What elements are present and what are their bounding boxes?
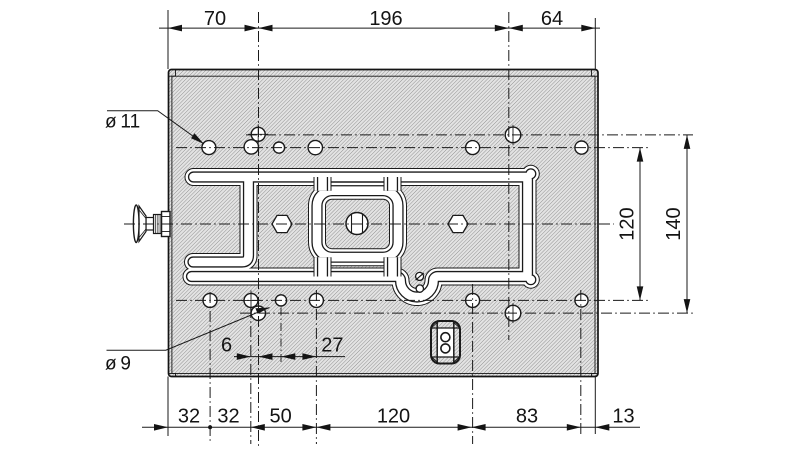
svg-text:32: 32 [178, 406, 200, 428]
svg-text:70: 70 [204, 8, 226, 30]
svg-text:27: 27 [321, 335, 343, 357]
svg-text:50: 50 [269, 406, 291, 428]
svg-text:13: 13 [612, 406, 634, 428]
svg-text:6: 6 [221, 335, 232, 357]
svg-text:120: 120 [617, 207, 639, 240]
svg-text:140: 140 [663, 207, 685, 240]
svg-text:32: 32 [217, 406, 239, 428]
svg-text:ø 11: ø 11 [105, 112, 140, 133]
svg-text:ø 9: ø 9 [105, 354, 131, 375]
svg-text:196: 196 [369, 8, 402, 30]
svg-text:83: 83 [516, 406, 538, 428]
svg-text:64: 64 [541, 8, 563, 30]
svg-text:120: 120 [377, 406, 410, 428]
